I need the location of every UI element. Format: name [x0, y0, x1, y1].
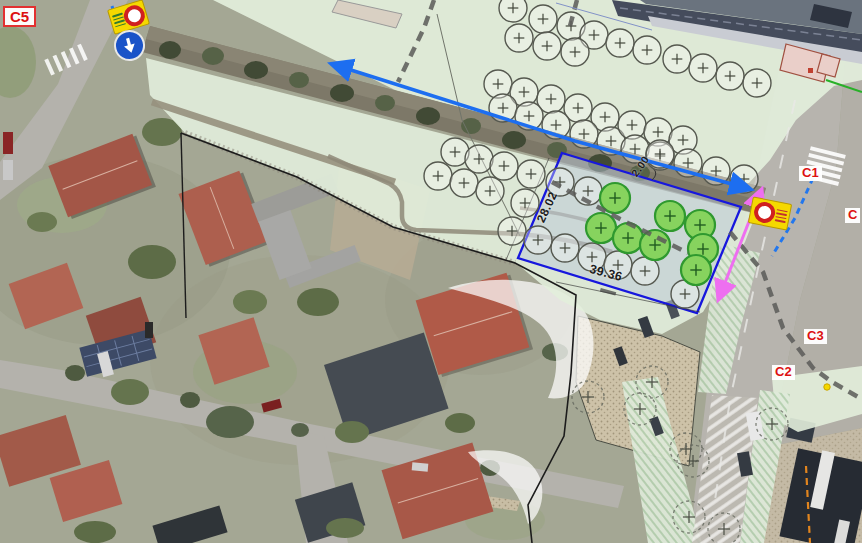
sign-text-lines [774, 209, 787, 223]
site-plan-map: C5 C1 C C3 C2 39.36 28.02 2.00 [0, 0, 862, 543]
label-c1: C1 [799, 166, 822, 181]
yellow-marker-dot [824, 384, 830, 390]
site-plan-canvas [0, 0, 862, 543]
label-c5: C5 [3, 6, 36, 27]
label-c-edge: C [845, 208, 860, 223]
label-c3: C3 [804, 329, 827, 344]
no-entry-ring-icon [121, 2, 147, 28]
down-arrow-icon [120, 35, 139, 55]
label-c2: C2 [772, 365, 795, 380]
no-entry-ring-icon [752, 200, 777, 225]
